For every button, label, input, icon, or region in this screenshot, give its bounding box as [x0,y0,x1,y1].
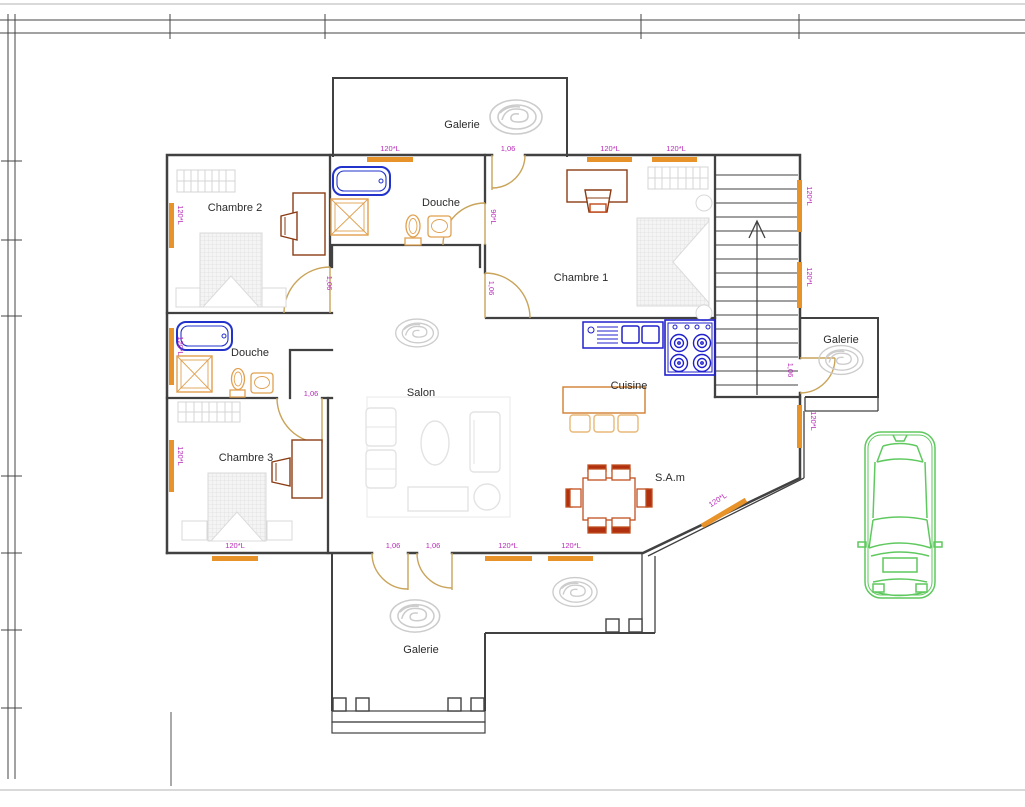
shower-icon [331,199,368,235]
dim-window: 120*L [805,267,814,287]
label-galerie-right: Galerie [823,334,858,346]
dim-window: 120*L [600,144,620,153]
chair [281,212,297,240]
door-galerie-right [800,358,835,393]
label-cuisine: Cuisine [611,380,648,392]
dim-door: 1,06 [786,363,795,378]
dim-window: 120*L [707,491,728,509]
doors [277,155,835,590]
dim-door: 1,06 [386,541,401,550]
staircase [715,175,798,395]
door-salon-2 [417,553,452,590]
sink-icon [251,373,273,393]
douche-left-fixtures [177,322,273,397]
stove-icon [665,320,715,375]
toilet-icon [230,369,245,398]
dim-window: 120*L [225,541,245,550]
label-douche-top: Douche [422,197,460,209]
dining-set [566,465,652,533]
salon-furniture [366,397,510,517]
galerie-bottom-walls [332,553,655,733]
galerie-top-walls [333,78,567,157]
sink-icon [428,216,451,237]
chambre2-furniture [176,170,325,307]
car-icon [858,432,942,598]
label-sam: S.A.m [655,472,685,484]
dim-window: 120*L [176,205,185,225]
kitchen-island [563,387,645,432]
label-salon: Salon [407,387,435,399]
label-douche-left: Douche [231,347,269,359]
dim-window: 120*L [380,144,400,153]
label-galerie-top: Galerie [444,119,479,131]
dim-window: 120*L [176,446,185,466]
dim-window: 120*L [809,411,818,431]
door-chambre1-top [492,155,525,190]
dim-window: 120*L [176,336,185,356]
toilet-icon [405,215,421,245]
dim-window: 120*L [666,144,686,153]
dim-window: 120*L [561,541,581,550]
dim-door: 1,06 [426,541,441,550]
label-chambre1: Chambre 1 [554,272,608,284]
desk [292,440,322,498]
dim-door: 1,06 [304,389,319,398]
dim-door: 90*L [489,209,498,224]
dim-door: 1,06 [325,276,334,291]
shower-icon [177,356,212,392]
dim-window: 120*L [498,541,518,550]
kitchen-sink-unit [583,322,663,348]
dim-window: 120*L [805,186,814,206]
chambre3-furniture [178,402,322,541]
dim-door: 1,06 [501,144,516,153]
desk [293,193,325,255]
label-galerie-bottom: Galerie [403,644,438,656]
door-chambre2 [284,267,330,313]
dim-door: 1,06 [487,281,496,296]
chambre1-furniture [567,167,712,321]
floor-plan-canvas: Galerie Douche Chambre 2 Chambre 1 Galer… [0,0,1025,807]
door-salon-1 [372,553,408,590]
chair [272,458,290,486]
label-chambre2: Chambre 2 [208,202,262,214]
label-chambre3: Chambre 3 [219,452,273,464]
bathtub-icon [333,167,390,195]
door-chambre3 [277,398,322,443]
